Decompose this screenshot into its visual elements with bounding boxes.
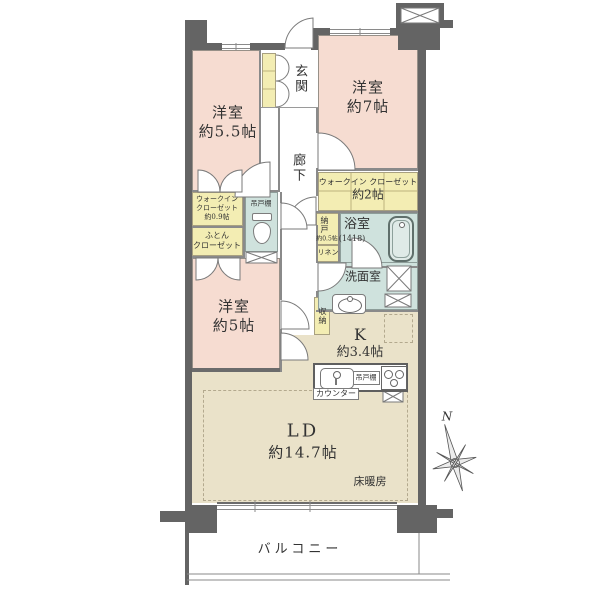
compass-north-label: N — [442, 410, 453, 425]
toilet-shelf-label: 吊戸棚 — [251, 200, 272, 209]
entrance-door-arc — [285, 18, 313, 48]
floor-heating-label: 床暖房 — [354, 475, 387, 489]
bathroom-label: 浴室 — [344, 217, 370, 233]
wic09-label: ウォークインクローゼット約0.9帖 — [196, 195, 238, 221]
vanity-counter-icon — [332, 294, 366, 314]
bedroom-5-label: 洋室約5帖 — [213, 297, 256, 335]
futon-door-left-arc — [196, 258, 218, 280]
linen-label: リネン — [318, 249, 339, 258]
floor-plan: 洋室約5.5帖 洋室約7帖 洋室約5帖 LD 約14.7帖 K 約3.4帖 玄関… — [0, 0, 600, 600]
bathroom-size-label: (1418) — [339, 234, 366, 244]
washroom-door-arc — [318, 263, 346, 291]
ld-label: LD 約14.7帖 — [268, 420, 337, 461]
wic09-door-right-arc — [220, 170, 242, 192]
compass-rose-icon — [422, 419, 483, 497]
balcony-label: バルコニー — [258, 542, 343, 558]
bathtub-icon — [388, 216, 414, 262]
toilet-tank-icon — [252, 213, 272, 221]
bedroom-5-5-label: 洋室約5.5帖 — [199, 103, 258, 141]
shoe-bifold-arcs — [276, 55, 289, 107]
counter-label: カウンター — [316, 389, 356, 399]
bedroom7-door-arc — [318, 133, 355, 170]
storage-label: 収納 — [317, 307, 327, 325]
washroom-label: 洗面室 — [345, 270, 381, 285]
kitchen-sink-icon — [320, 368, 354, 389]
ld-door-arc — [281, 333, 308, 360]
storeroom-label: 納戸 — [319, 216, 329, 234]
bedroom5-door-arc — [281, 301, 309, 329]
bedroom-7-label: 洋室約7帖 — [347, 78, 390, 116]
wic2-label: ウォークイン クローゼット 約2帖 — [319, 178, 418, 203]
storeroom-size-label: 約0.5帖 — [316, 235, 338, 243]
stove-icon — [381, 366, 407, 390]
futon-closet-label: ふとんクローゼット — [193, 231, 241, 251]
hallway-label: 廊下 — [289, 153, 305, 183]
kitchen-label: K 約3.4帖 — [337, 325, 384, 361]
kitchen-shelf-label: 吊戸棚 — [356, 374, 377, 383]
futon-door-right-arc — [218, 258, 240, 280]
wic09-door-left-arc — [198, 170, 220, 192]
entrance-label: 玄関 — [291, 64, 307, 94]
